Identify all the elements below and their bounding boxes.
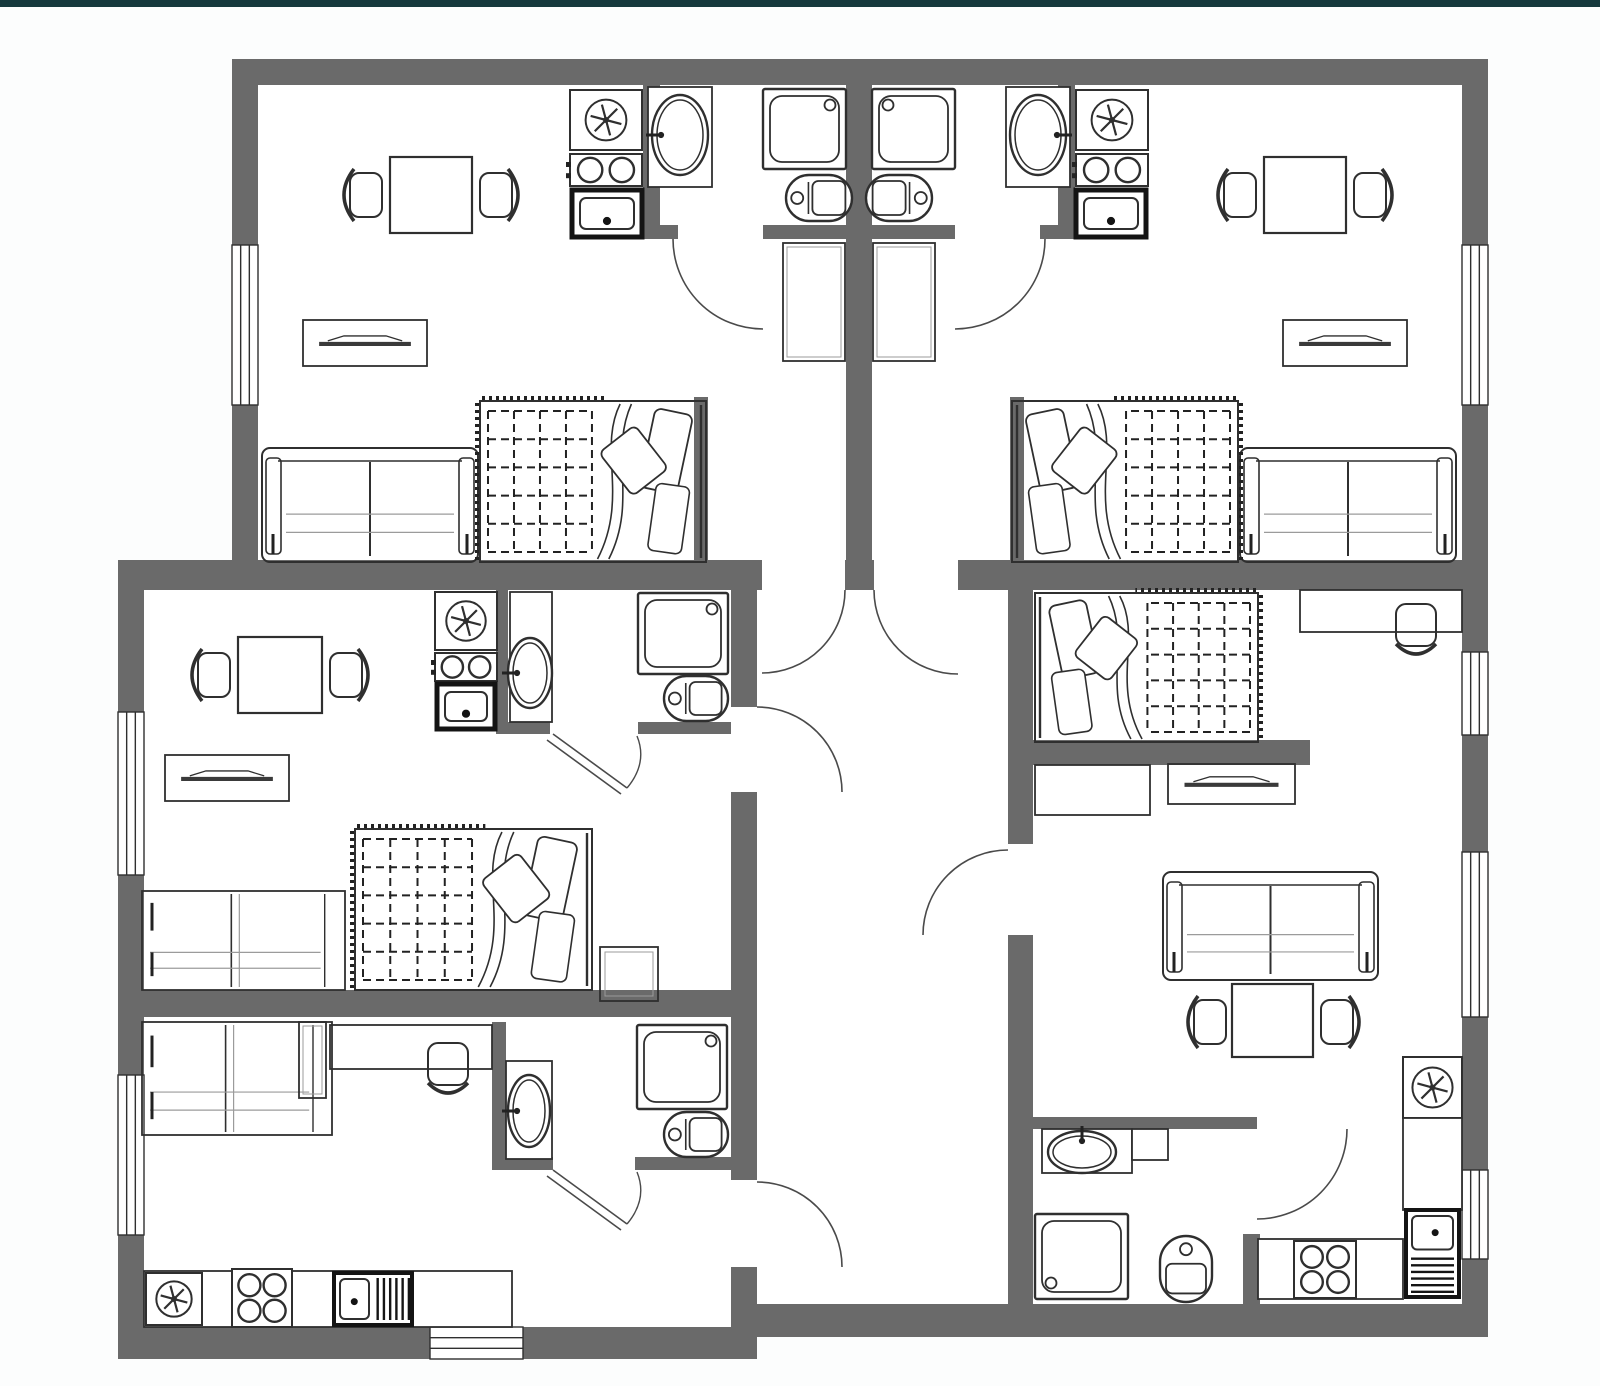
apt3-shower-icon	[638, 593, 728, 674]
apt3-fridge-icon	[435, 592, 497, 650]
apt3-apt4-divider	[118, 990, 757, 1017]
window-apt4-bottom	[430, 1327, 523, 1359]
apt5-kitchen-sink-icon	[1406, 1210, 1459, 1297]
outer-wall-left-upper-a	[232, 59, 258, 245]
apt2-fridge-icon	[1076, 90, 1148, 150]
outer-wall-right-d	[1462, 1017, 1488, 1170]
apt5-kitchen-counter-icon	[1403, 1118, 1462, 1210]
apt2-stove-icon	[1072, 154, 1148, 186]
apt4-bath-wall-bottom-b	[635, 1157, 731, 1170]
apt4-bath-wall-left	[492, 1022, 506, 1170]
apt5-shower-icon	[1035, 1214, 1128, 1299]
apt1-shower-icon	[763, 89, 846, 169]
apt2-bath-wall-a	[1040, 225, 1063, 239]
apt3-kitchen-sink-icon	[437, 684, 495, 729]
apt3-bath-wall-bottom-a	[496, 722, 550, 734]
hall-left-wall-b	[731, 792, 757, 1180]
apt2-shower-icon	[872, 89, 955, 169]
apt3-stove-icon	[431, 653, 497, 681]
apt5-toilet-icon	[1160, 1236, 1212, 1302]
apt4-toilet-icon	[664, 1112, 728, 1157]
window-apt3-left	[118, 712, 144, 875]
apt1-stove-icon	[566, 154, 642, 186]
hall-left-wall-a	[731, 590, 757, 707]
apt3-toilet-icon	[664, 676, 728, 721]
apt1-bath-wall-a	[655, 225, 678, 239]
window-apt1-left	[232, 245, 258, 405]
apt1-kitchen-sink-icon	[572, 190, 642, 237]
outer-wall-bottom-left-b	[523, 1327, 757, 1359]
outer-wall-right-c	[1462, 735, 1488, 852]
top-accent-bar	[0, 0, 1600, 7]
upper-lower-divider-b	[845, 560, 874, 590]
floor-plan-page	[0, 7, 1600, 1386]
outer-wall-right-b	[1462, 405, 1488, 652]
upper-lower-divider-c	[958, 560, 1488, 590]
upper-lower-divider-a	[118, 560, 762, 590]
apt5-bath-wall-top	[1033, 1117, 1257, 1129]
central-party-wall	[846, 59, 872, 590]
apt3-bath-wall-bottom-b	[638, 722, 731, 734]
outer-wall-bottom-left-a	[118, 1327, 430, 1359]
outer-wall-bottom-right	[757, 1304, 1488, 1337]
apt2-kitchen-sink-icon	[1076, 190, 1146, 237]
window-apt2-right	[1462, 245, 1488, 405]
apt1-toilet-icon	[786, 175, 852, 221]
hall-right-wall-b	[1008, 935, 1033, 1304]
apt5-stove-icon	[1294, 1241, 1356, 1298]
apt4-shower-icon	[637, 1025, 727, 1109]
apt4-stove-icon	[232, 1269, 292, 1327]
floor-plan-canvas	[0, 7, 1600, 1386]
outer-wall-left-mid-b	[118, 875, 144, 1075]
apt2-bath-wall-b	[865, 225, 955, 239]
apt4-fridge-icon	[146, 1273, 202, 1325]
apt5-bedroom-wall	[1033, 740, 1310, 765]
outer-wall-right-a	[1462, 59, 1488, 245]
window-apt4-left	[118, 1075, 144, 1235]
window-apt5-bedroom	[1462, 652, 1488, 735]
apt5-basin-side-counter-icon	[1132, 1129, 1168, 1160]
apt5-fridge-icon	[1403, 1057, 1462, 1118]
floors	[118, 59, 1488, 1359]
window-apt5-living	[1462, 852, 1488, 1017]
apt1-bath-wall-b	[763, 225, 853, 239]
hall-right-wall-a	[1008, 590, 1033, 844]
window-apt5-kitchen	[1462, 1170, 1488, 1259]
apt2-toilet-icon	[866, 175, 932, 221]
apt1-fridge-icon	[570, 90, 642, 150]
apt4-kitchen-sink-icon	[334, 1273, 412, 1325]
